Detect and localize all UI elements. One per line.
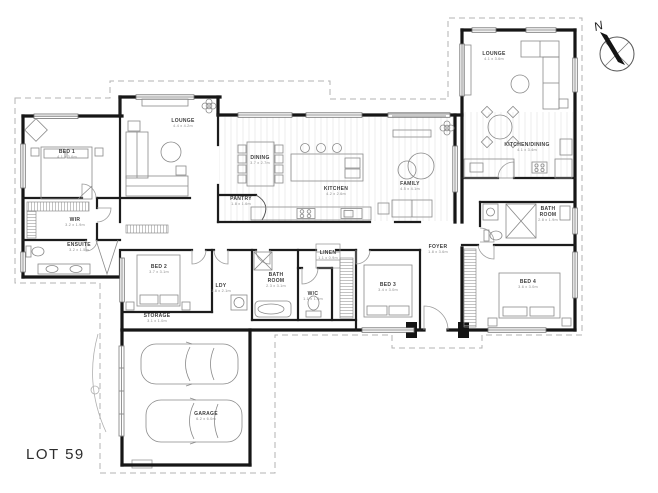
bathroom2-fittings [483,204,570,241]
exterior-walls [23,30,575,465]
car-2 [146,398,242,444]
garage-door [119,346,124,436]
compass-needle [600,32,625,65]
lounge2-furniture [464,41,568,109]
porch-piers [406,322,469,338]
lounge-furniture [126,99,188,196]
ensuite-fittings [26,240,118,274]
furniture [25,41,572,444]
bathroom-fittings [254,252,291,317]
floorboard-shading [219,112,573,221]
laundry-fittings [231,295,247,310]
bed4-furniture [488,273,571,326]
plant-icon [202,99,216,113]
wc-fittings [306,296,321,317]
bed2-furniture [126,255,190,310]
bed1-furniture [25,119,103,199]
floor-plan-drawing [0,0,658,493]
north-compass [600,32,634,71]
lot-title: LOT 59 [26,446,85,463]
car-1 [141,342,238,386]
bed3-furniture [364,265,412,317]
floor-plan-page: BED 14.1 x 3.6m WIR3.2 x 1.9m ENSUITE3.2… [0,0,658,493]
